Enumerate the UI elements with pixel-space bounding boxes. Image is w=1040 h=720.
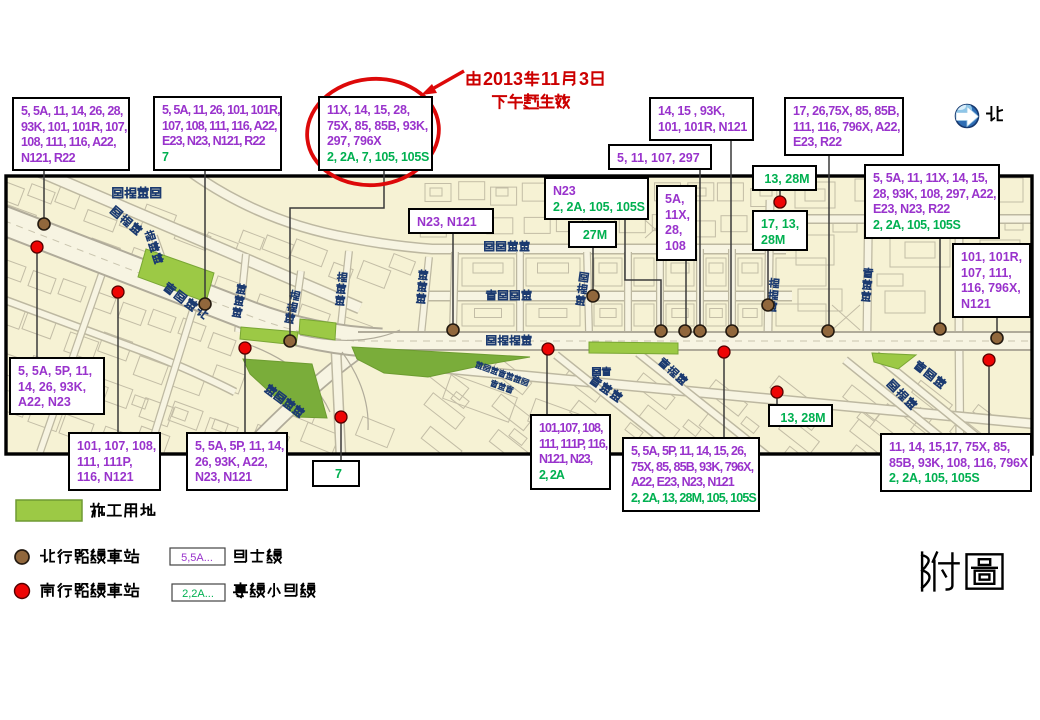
svg-text:2013: 2013	[483, 69, 523, 89]
svg-text:3: 3	[579, 69, 589, 89]
svg-text:11: 11	[541, 69, 560, 89]
svg-text:5,5A...: 5,5A...	[181, 552, 213, 564]
svg-text:2,2A...: 2,2A...	[182, 588, 214, 600]
